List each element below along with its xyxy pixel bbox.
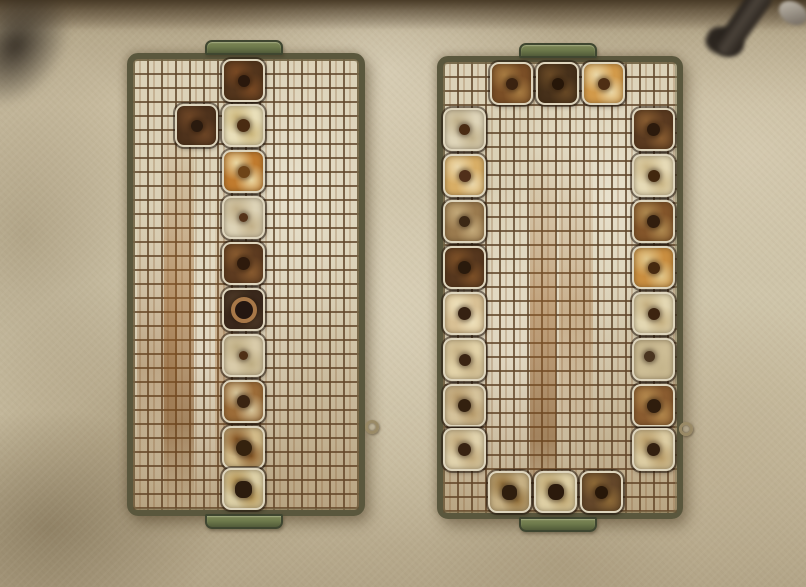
baking-tin [222, 196, 265, 239]
baking-tin [490, 62, 533, 105]
tin-hole [459, 354, 471, 366]
tin-hole [236, 440, 252, 456]
baking-tin [632, 292, 675, 335]
tin-hole [647, 123, 660, 136]
baking-tin [536, 62, 579, 105]
tin-hole [647, 399, 661, 413]
tin-hole [459, 170, 471, 182]
baking-tin [443, 338, 486, 381]
baking-tin [443, 154, 486, 197]
tin-hole [548, 484, 564, 500]
baking-tin [632, 384, 675, 427]
baking-tin [488, 471, 531, 513]
baking-tin [175, 104, 218, 147]
baking-tin [582, 62, 625, 105]
tin-hole [598, 78, 610, 90]
baking-tin [632, 154, 675, 197]
baking-tin [632, 108, 675, 151]
baking-tin [534, 471, 577, 513]
tin-hole [647, 443, 660, 456]
baking-tin [443, 428, 486, 471]
tin-hole [237, 119, 250, 132]
baking-tin [222, 59, 265, 102]
tin-hole [458, 443, 471, 456]
tin-hole [502, 485, 517, 500]
tin-hole [458, 261, 471, 274]
floor-eyelet [679, 422, 693, 436]
tin-hole [648, 308, 660, 320]
tin-hole [237, 257, 250, 270]
top-right-pipe-object [680, 0, 806, 120]
baking-tin [580, 471, 623, 513]
baking-tin [222, 288, 265, 331]
baking-tin [222, 104, 265, 147]
baking-tin [443, 246, 486, 289]
baking-tin [222, 468, 265, 510]
tin-hole [238, 166, 250, 178]
pipe-highlight [775, 0, 806, 30]
tin-hole [552, 78, 564, 90]
baking-tin [222, 334, 265, 377]
tin-hole [647, 215, 660, 228]
tin-hole [644, 351, 655, 362]
baking-tin [222, 150, 265, 193]
tin-hole [237, 395, 250, 408]
tin-hole [595, 486, 608, 499]
tin-hole [648, 262, 660, 274]
tray-handle-top [519, 43, 597, 58]
photo-canvas [0, 0, 806, 587]
tray-handle-bottom [205, 514, 283, 529]
baking-tin [443, 384, 486, 427]
baking-tin [632, 200, 675, 243]
baking-tin [443, 108, 486, 151]
tin-hole [459, 124, 470, 135]
baking-tin [632, 338, 675, 381]
baking-tin [222, 380, 265, 423]
baking-tin [222, 426, 265, 469]
baking-tin [632, 246, 675, 289]
baking-tin [222, 242, 265, 285]
pipe-arm [712, 0, 776, 60]
tin-hole [191, 120, 203, 132]
tray-handle-top [205, 40, 283, 55]
tray-left [127, 53, 365, 516]
tin-hole [238, 75, 250, 87]
baking-tin [443, 292, 486, 335]
floor-eyelet [365, 420, 379, 434]
tin-hole [239, 351, 248, 360]
tin-hole [459, 216, 470, 227]
tray-right [437, 56, 683, 519]
tin-hole [235, 481, 252, 498]
tin-hole [458, 399, 471, 412]
tin-hole [648, 170, 660, 182]
tin-hole [239, 213, 248, 222]
tin-hole [458, 307, 471, 320]
tin-hole [231, 297, 257, 323]
baking-tin [443, 200, 486, 243]
tray-handle-bottom [519, 517, 597, 532]
tin-hole [506, 78, 518, 90]
baking-tin [632, 428, 675, 471]
